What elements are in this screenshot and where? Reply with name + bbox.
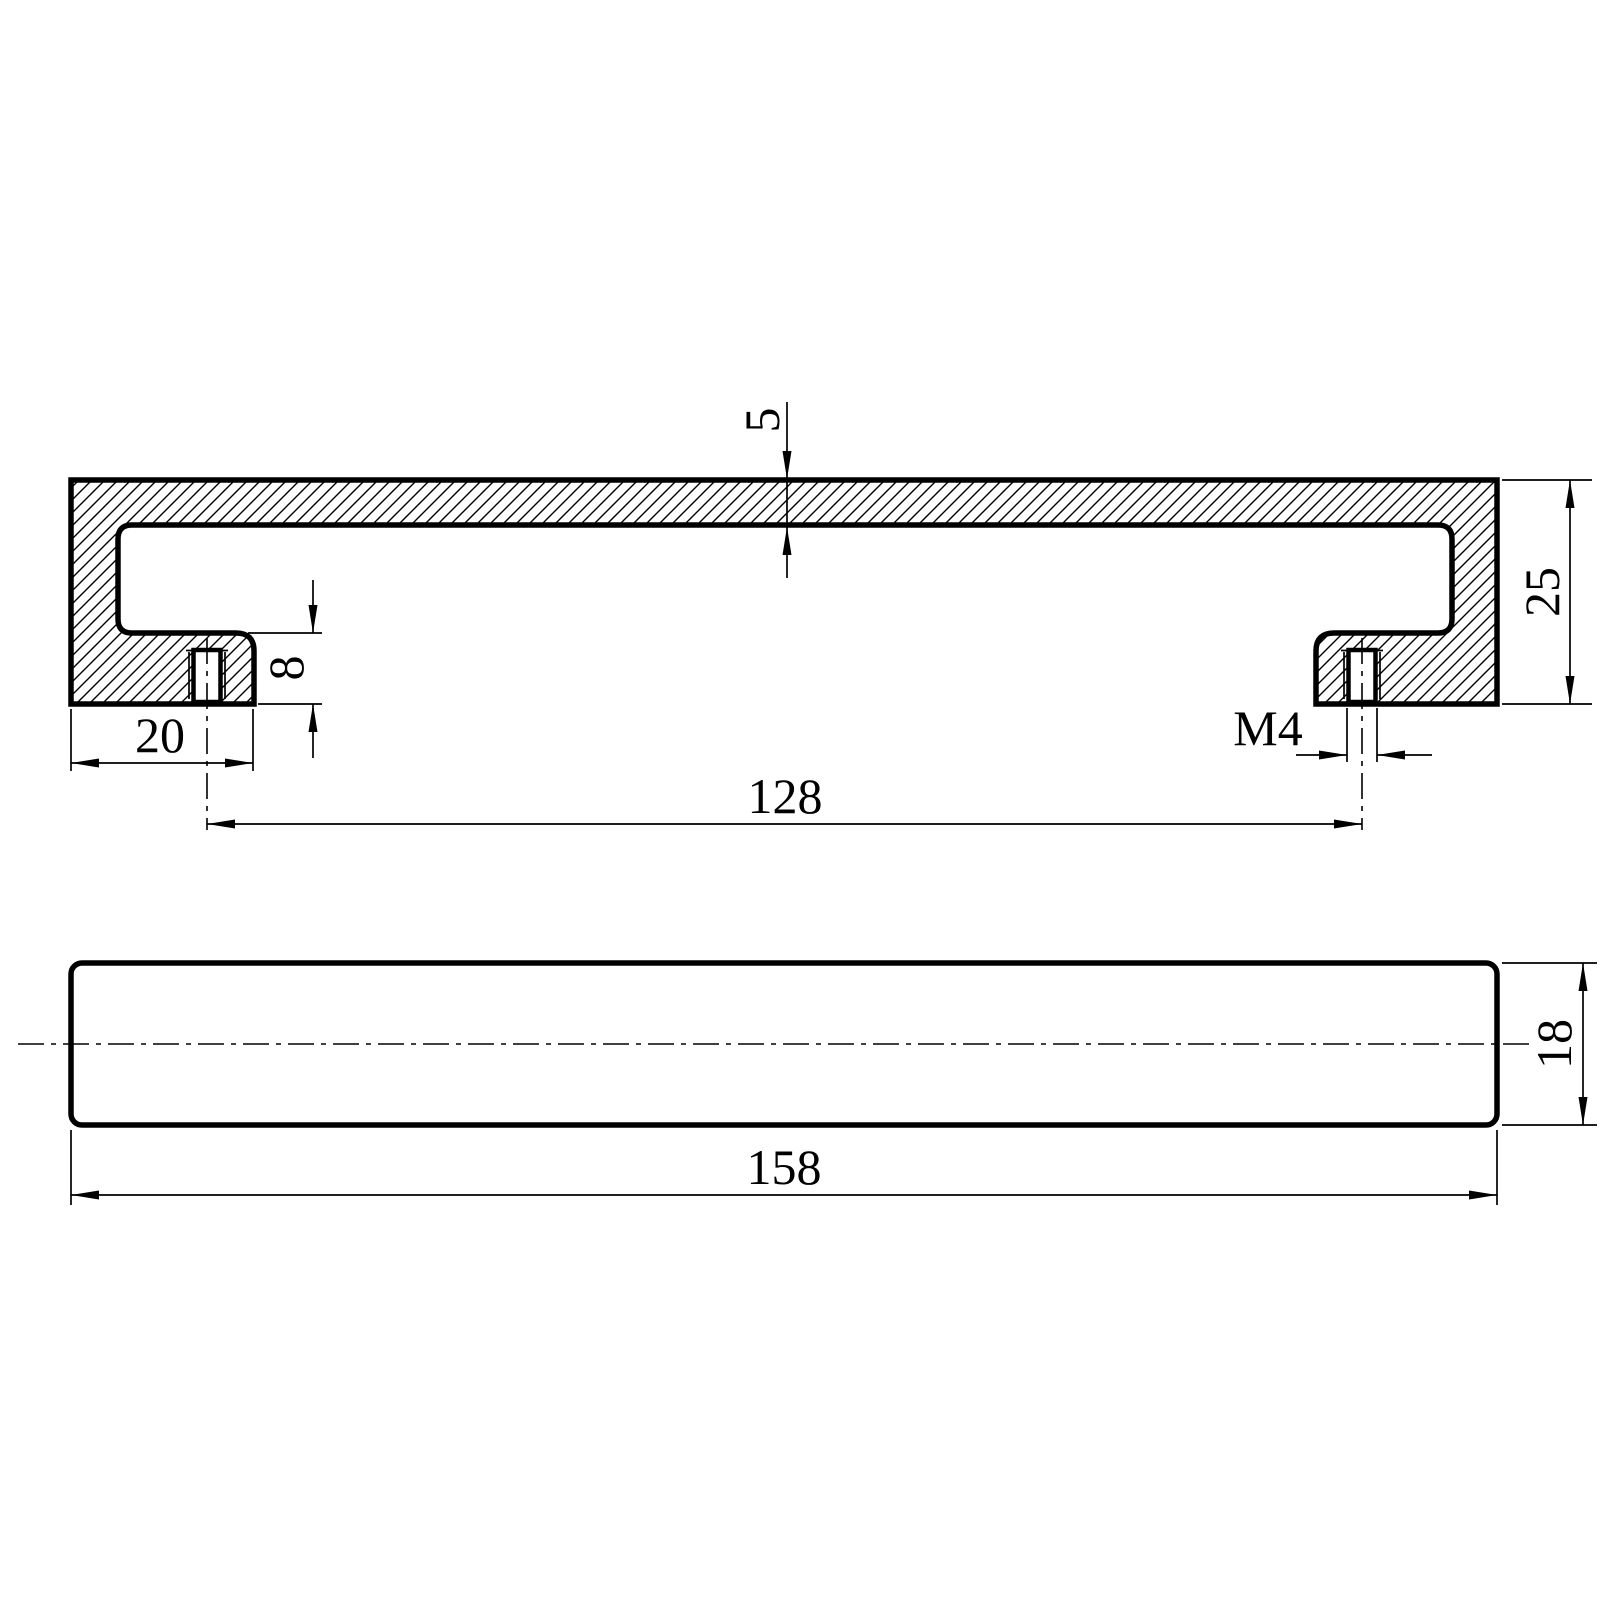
arrowhead-down-icon <box>783 451 792 479</box>
arrowhead-up-icon <box>783 527 792 555</box>
dimension-label-overall-width: 18 <box>1526 1019 1582 1069</box>
dimension-label-thread-size: M4 <box>1233 700 1302 756</box>
arrowhead-down-icon <box>309 605 318 633</box>
arrowhead-left-icon <box>207 820 235 829</box>
arrowhead-right-icon <box>1334 820 1362 829</box>
section-view: 5 8 20 M4 <box>71 402 1592 830</box>
technical-drawing-canvas: 5 8 20 M4 <box>0 0 1600 1600</box>
arrowhead-down-icon <box>1566 676 1575 704</box>
dimension-label-hole-center-distance: 128 <box>748 768 823 824</box>
drawing-sheet: 5 8 20 M4 <box>0 0 1600 1600</box>
dimension-foot-width: 20 <box>71 707 253 771</box>
arrowhead-left-icon <box>71 759 99 768</box>
dimension-hole-center-distance: 128 <box>207 768 1362 829</box>
arrowhead-left-icon <box>1377 751 1405 760</box>
dimension-label-foot-step-height: 8 <box>258 656 314 681</box>
plan-view: 158 18 <box>18 963 1597 1205</box>
dimension-label-foot-width: 20 <box>135 707 185 763</box>
dimension-overall-height: 25 <box>1502 480 1592 704</box>
dimension-foot-step-height: 8 <box>248 580 322 758</box>
left-screw-hole <box>186 638 228 830</box>
arrowhead-left-icon <box>71 1191 99 1200</box>
dimension-label-top-plate-thickness: 5 <box>734 408 790 433</box>
dimension-thread-size: M4 <box>1233 700 1432 762</box>
arrowhead-up-icon <box>1579 963 1588 991</box>
arrowhead-up-icon <box>309 704 318 732</box>
dimension-label-overall-length: 158 <box>747 1139 822 1195</box>
arrowhead-right-icon <box>225 759 253 768</box>
arrowhead-up-icon <box>1566 480 1575 508</box>
dimension-label-overall-height: 25 <box>1514 567 1570 617</box>
arrowhead-right-icon <box>1469 1191 1497 1200</box>
arrowhead-down-icon <box>1579 1097 1588 1125</box>
dimension-overall-length: 158 <box>71 1130 1497 1205</box>
arrowhead-right-icon <box>1319 751 1347 760</box>
